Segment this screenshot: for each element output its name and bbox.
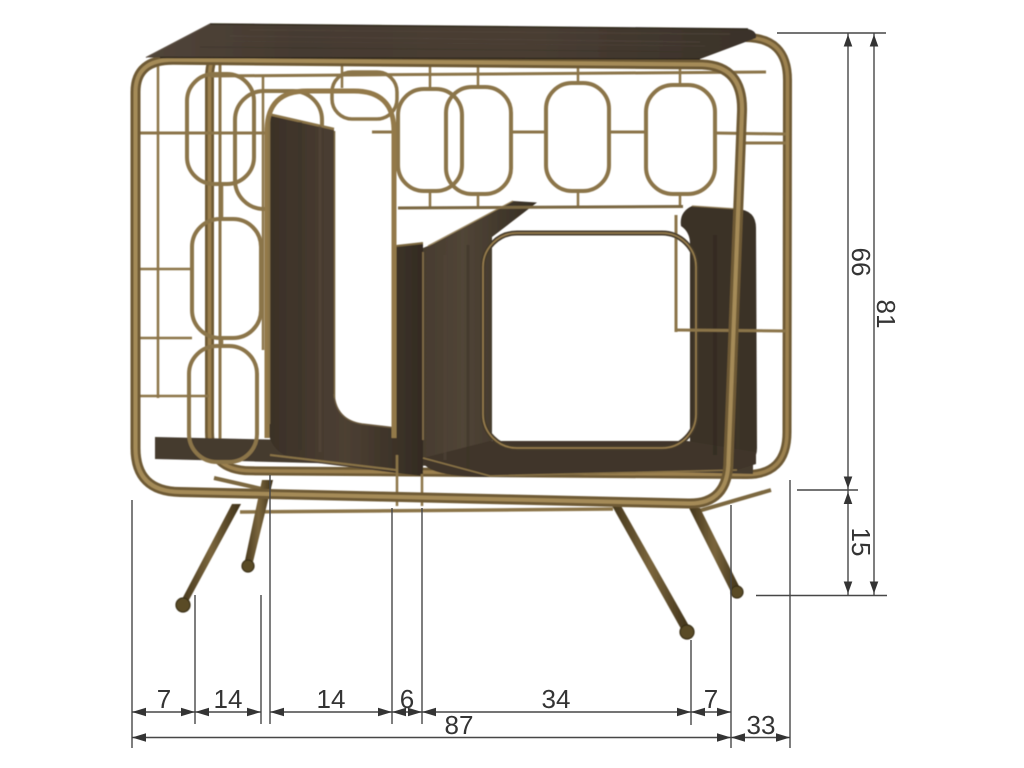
svg-text:15: 15: [846, 528, 876, 557]
svg-text:7: 7: [157, 684, 171, 714]
svg-text:81: 81: [871, 300, 901, 329]
svg-text:34: 34: [542, 684, 571, 714]
svg-text:33: 33: [747, 710, 776, 740]
svg-text:14: 14: [214, 684, 243, 714]
svg-text:87: 87: [445, 710, 474, 740]
svg-text:7: 7: [704, 684, 718, 714]
svg-text:66: 66: [846, 248, 876, 277]
svg-text:14: 14: [317, 684, 346, 714]
svg-text:6: 6: [400, 684, 414, 714]
